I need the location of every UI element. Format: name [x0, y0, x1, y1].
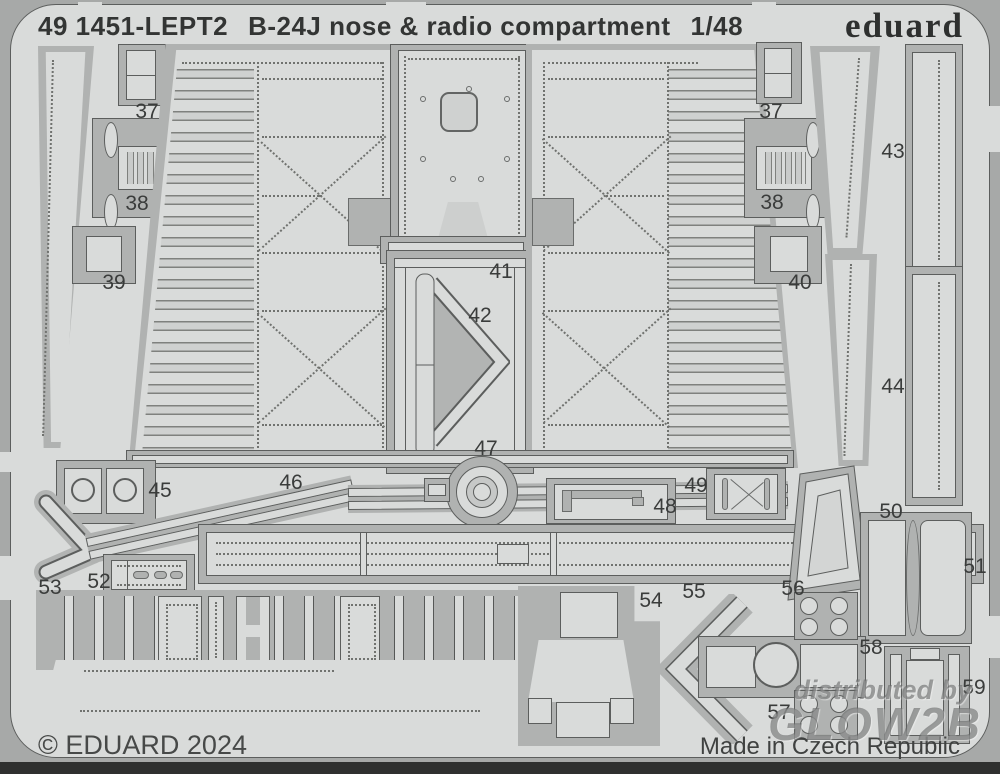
part-41-left-bar [394, 258, 406, 466]
part-48-slot [562, 490, 572, 512]
part-55-hole [497, 544, 529, 564]
rivet-line [117, 584, 181, 586]
frame-tab [987, 106, 1000, 152]
part-39 [86, 236, 122, 272]
frame-tab [0, 452, 13, 472]
part-label-38-right: 38 [760, 191, 783, 215]
part-53-teeth [44, 596, 544, 664]
rivet-dot [420, 96, 426, 102]
part-40 [770, 236, 808, 272]
rivet-line [408, 58, 520, 60]
part-label-37-right: 37 [759, 100, 782, 124]
part-label-41: 41 [489, 260, 512, 284]
copyright: © EDUARD 2024 [38, 730, 247, 761]
frame-tab [0, 556, 13, 600]
rivet-line [117, 565, 181, 567]
rivet-line [84, 670, 334, 672]
part-38-left-spindle-bottom [104, 194, 118, 230]
part-54-back [560, 592, 618, 638]
part-52-slot [133, 571, 149, 579]
part-label-38-left: 38 [125, 192, 148, 216]
bead [830, 618, 848, 636]
rivet-line [548, 424, 664, 426]
catalog-number: 49 1451-LEPT2 [38, 11, 228, 41]
part-label-43: 43 [881, 140, 904, 164]
rivet-line [548, 78, 664, 80]
part-54-flap [528, 698, 552, 724]
part-label-37-left: 37 [135, 100, 158, 124]
rivet-line [667, 62, 669, 452]
part-45-hole [113, 478, 137, 502]
rivet-frame [166, 604, 198, 660]
panel-center-window [440, 92, 478, 132]
part-label-58: 58 [859, 636, 882, 660]
part-55-divider [360, 532, 367, 576]
rivet-line [404, 56, 406, 246]
rivet-line [80, 710, 480, 712]
rivet-line [938, 282, 940, 490]
part-52-slot [154, 571, 167, 579]
rivet-line [548, 310, 664, 312]
part-label-39: 39 [102, 271, 125, 295]
rivet-line [182, 62, 382, 64]
rivet-line [257, 62, 259, 452]
part-label-47: 47 [474, 437, 497, 461]
part-label-48: 48 [653, 495, 676, 519]
rivet-dot [450, 176, 456, 182]
part-label-56: 56 [781, 577, 804, 601]
part-52-slot [170, 571, 183, 579]
part-44 [912, 274, 956, 498]
part-53-cell-h [236, 596, 270, 664]
rivet-dot [504, 96, 510, 102]
part-43 [912, 52, 956, 270]
rivet-line [262, 310, 382, 312]
part-57-left-pad [706, 646, 756, 688]
rivet-frame [348, 604, 376, 660]
part-label-46: 46 [279, 471, 302, 495]
part-51 [920, 520, 966, 636]
rivet-line [543, 62, 545, 452]
rivet-line [215, 602, 217, 658]
part-41-right-bar [514, 258, 526, 466]
rivet-line [262, 78, 382, 80]
part-label-45: 45 [148, 479, 171, 503]
part-59-tab [910, 648, 940, 660]
rivet-line [262, 195, 322, 197]
rivet-line [262, 252, 382, 254]
part-label-51: 51 [963, 555, 986, 579]
rivet-line [262, 136, 382, 138]
rivet-dot [504, 156, 510, 162]
kit-title: B-24J nose & radio compartment [248, 11, 670, 41]
frame-tab [987, 616, 1000, 658]
part-49-slat [722, 478, 728, 510]
part-38-left-spindle-top [104, 122, 118, 158]
part-label-50: 50 [879, 500, 902, 524]
part-50-51-curve [906, 520, 920, 636]
part-38-right-slats [762, 152, 806, 184]
part-48-slot [562, 490, 642, 499]
part-42-triangle [408, 272, 510, 458]
part-54-flap [610, 698, 634, 724]
rivet-line [548, 136, 664, 138]
rivet-line [548, 252, 664, 254]
part-label-52: 52 [87, 570, 110, 594]
sheet-title: 49 1451-LEPT2B-24J nose & radio compartm… [38, 11, 743, 42]
photoetch-sheet-scan: { "sheet": { "header": { "catalog_no": "… [0, 0, 1000, 774]
part-47-hub [473, 483, 491, 501]
rivet-dot [420, 156, 426, 162]
frame-tab [752, 2, 776, 14]
part-54-bottom [556, 702, 610, 738]
bottom-dark-strip [0, 762, 1000, 774]
part-label-40: 40 [788, 271, 811, 295]
eduard-logo: eduard [845, 6, 964, 46]
part-label-49: 49 [684, 474, 707, 498]
rivet-line [518, 56, 520, 246]
rivet-dot [466, 86, 472, 92]
rivet-line [548, 62, 698, 64]
bead [830, 597, 848, 615]
part-37-right-divider [764, 73, 792, 74]
part-37-left-divider [126, 75, 156, 76]
part-47-stub [428, 484, 446, 496]
rivet-line [606, 195, 664, 197]
part-55-divider [550, 532, 557, 576]
bead [800, 618, 818, 636]
part-50 [868, 520, 906, 636]
scale: 1/48 [691, 11, 744, 41]
part-38-right-spindle-bottom [806, 194, 820, 230]
panel-right-notch [532, 198, 574, 246]
watermark-line2: GLOW2B [768, 697, 982, 751]
rivet-dot [478, 176, 484, 182]
part-54-body [528, 640, 634, 702]
part-label-42: 42 [468, 304, 491, 328]
part-label-55: 55 [682, 580, 705, 604]
rivet-line [938, 60, 940, 260]
part-48-slot [632, 497, 644, 506]
rivet-line [262, 424, 382, 426]
part-label-53: 53 [38, 576, 61, 600]
part-49-slat [764, 478, 770, 510]
part-label-44: 44 [881, 375, 904, 399]
part-label-54: 54 [639, 589, 662, 613]
